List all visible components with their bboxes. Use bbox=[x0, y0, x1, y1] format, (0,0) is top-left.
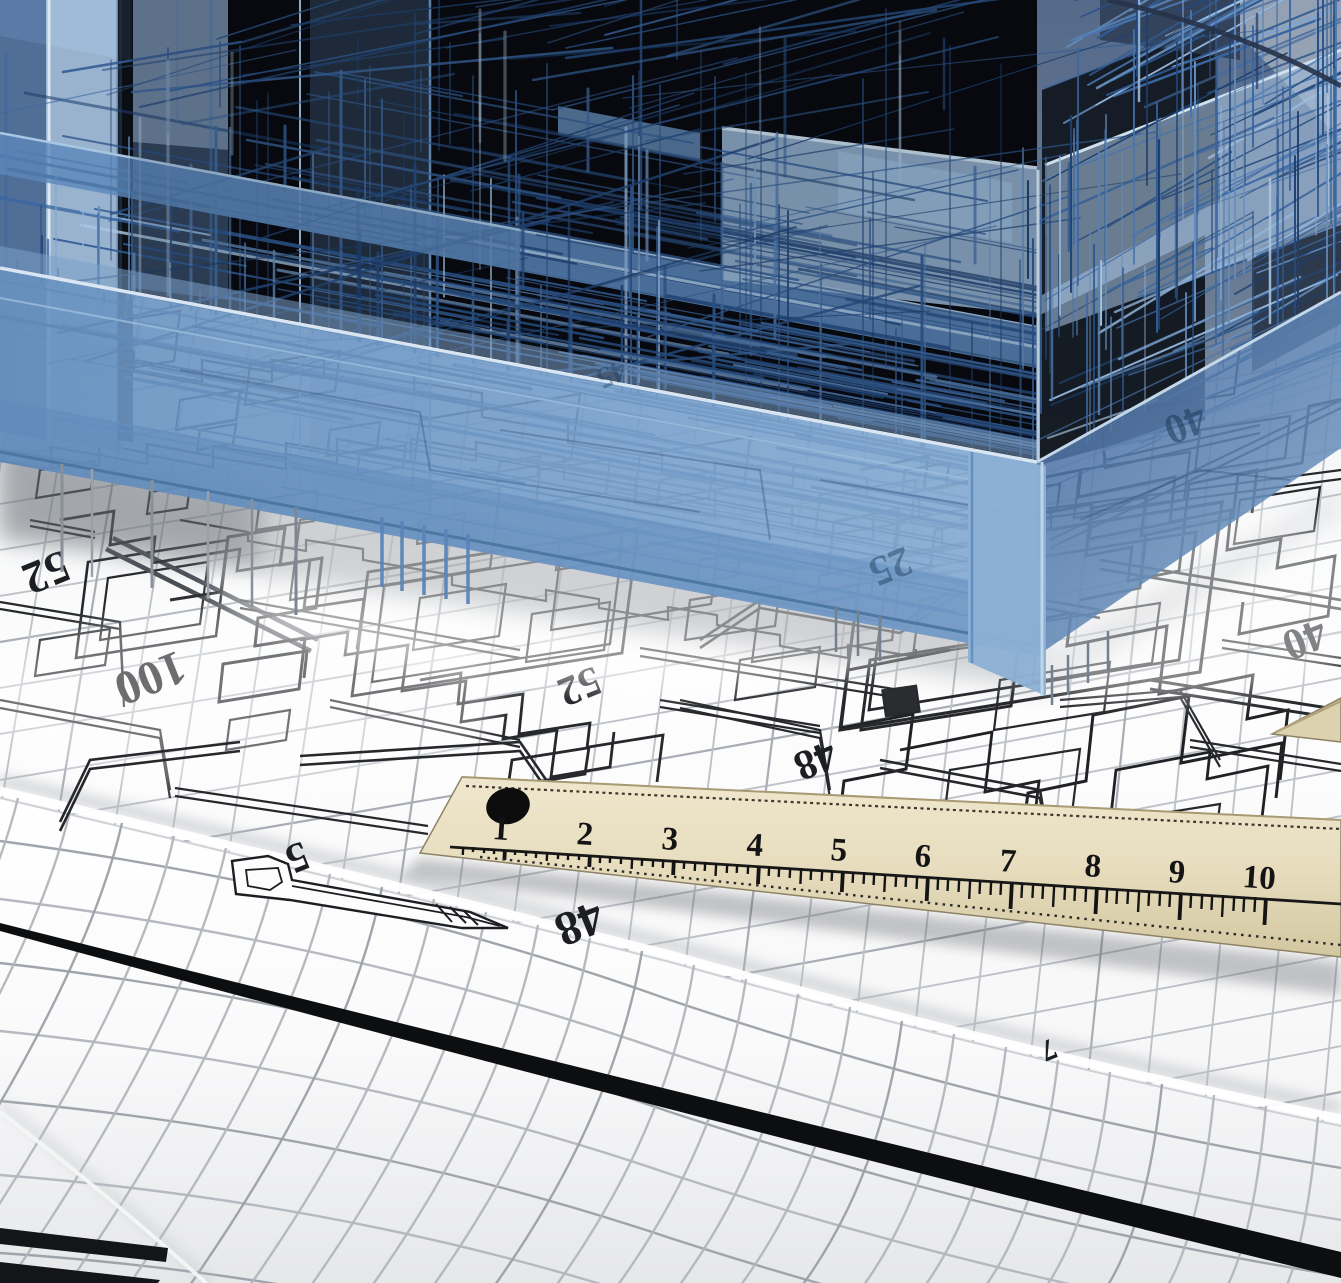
svg-text:4: 4 bbox=[745, 827, 764, 864]
svg-text:2: 2 bbox=[575, 816, 594, 853]
svg-text:5: 5 bbox=[829, 832, 848, 869]
svg-text:6: 6 bbox=[913, 838, 932, 875]
svg-text:1: 1 bbox=[491, 811, 510, 848]
svg-text:9: 9 bbox=[1167, 854, 1186, 891]
svg-text:3: 3 bbox=[660, 821, 679, 858]
svg-text:10: 10 bbox=[1241, 859, 1276, 897]
svg-text:8: 8 bbox=[1083, 848, 1102, 885]
svg-text:7: 7 bbox=[998, 843, 1017, 880]
